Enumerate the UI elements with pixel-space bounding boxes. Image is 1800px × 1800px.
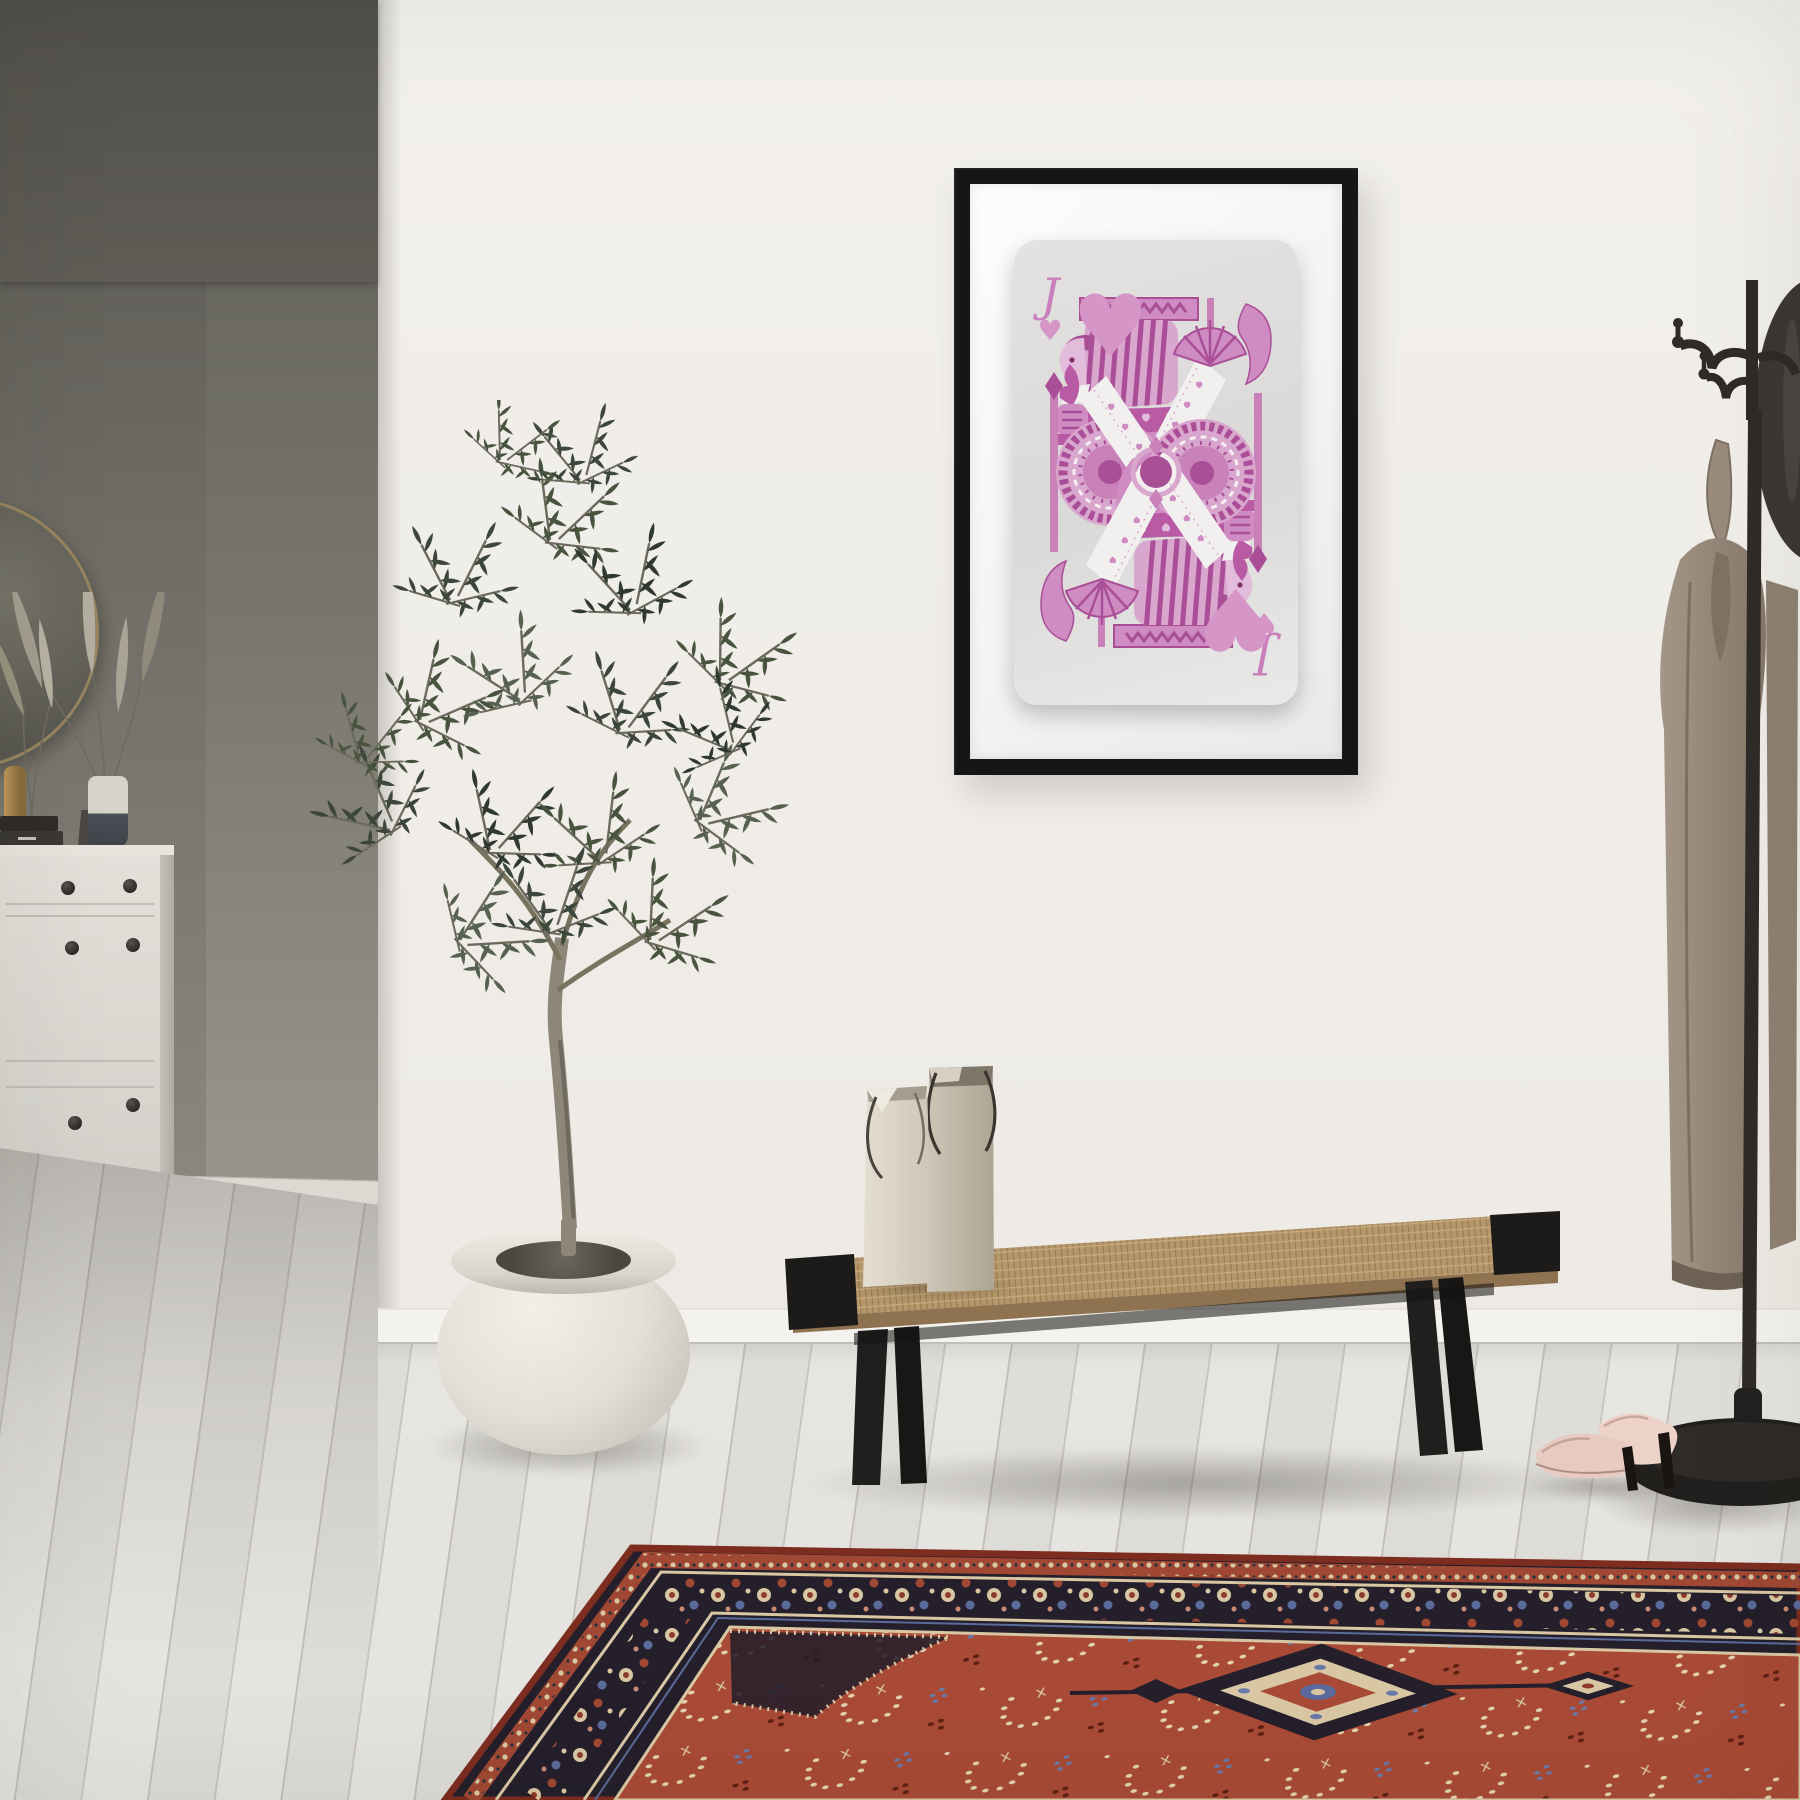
tree-canopy	[300, 400, 820, 1015]
card-rank-top: J	[1028, 276, 1072, 315]
drawer-knob	[61, 881, 75, 895]
playing-card: J ♥ ♥ J ♥ ♥	[1014, 240, 1298, 705]
drawer-knob	[65, 941, 79, 955]
poster-frame: J ♥ ♥ J ♥ ♥	[954, 168, 1358, 775]
bench-leg	[852, 1329, 888, 1485]
olive-tree	[300, 400, 820, 1280]
high-heels	[1530, 1390, 1690, 1510]
hallway-room: J ♥ ♥ J ♥ ♥	[0, 0, 1800, 1800]
card-large-heart-top: ♥	[1072, 284, 1149, 370]
drawer-divider	[6, 1086, 154, 1088]
book-stack	[0, 816, 64, 848]
drawer-divider	[6, 915, 154, 917]
card-small-heart-top: ♥	[1028, 317, 1072, 345]
heel-shoe-front	[1536, 1433, 1638, 1491]
drawer-knob	[126, 938, 140, 952]
bench-end-cap-right	[1490, 1211, 1560, 1275]
card-corner-top-left: J ♥	[1028, 276, 1072, 345]
drawer-divider	[6, 1060, 154, 1062]
poster-mat: J ♥ ♥ J ♥ ♥	[970, 184, 1342, 759]
book-spine-text-mark	[18, 837, 36, 840]
trunk-base	[561, 1218, 576, 1256]
coat-stand	[1620, 260, 1800, 1520]
planter-pot	[437, 1228, 690, 1458]
shopping-bags	[855, 1040, 1010, 1300]
bench-end-cap-left	[785, 1254, 858, 1330]
drawer-knob	[126, 1098, 140, 1112]
flower-vase	[88, 776, 128, 848]
shopping-bag-front	[863, 1086, 933, 1287]
persian-rug	[430, 1535, 1800, 1800]
shopping-bag-back	[927, 1066, 995, 1292]
card-large-heart-bottom: ♥	[1197, 575, 1274, 661]
drawer-divider	[6, 903, 154, 905]
drawer-knob	[123, 879, 137, 893]
bench-leg	[894, 1326, 927, 1484]
recess-soffit	[0, 0, 378, 282]
coat	[1660, 440, 1798, 1290]
drawer-knob	[68, 1116, 82, 1130]
